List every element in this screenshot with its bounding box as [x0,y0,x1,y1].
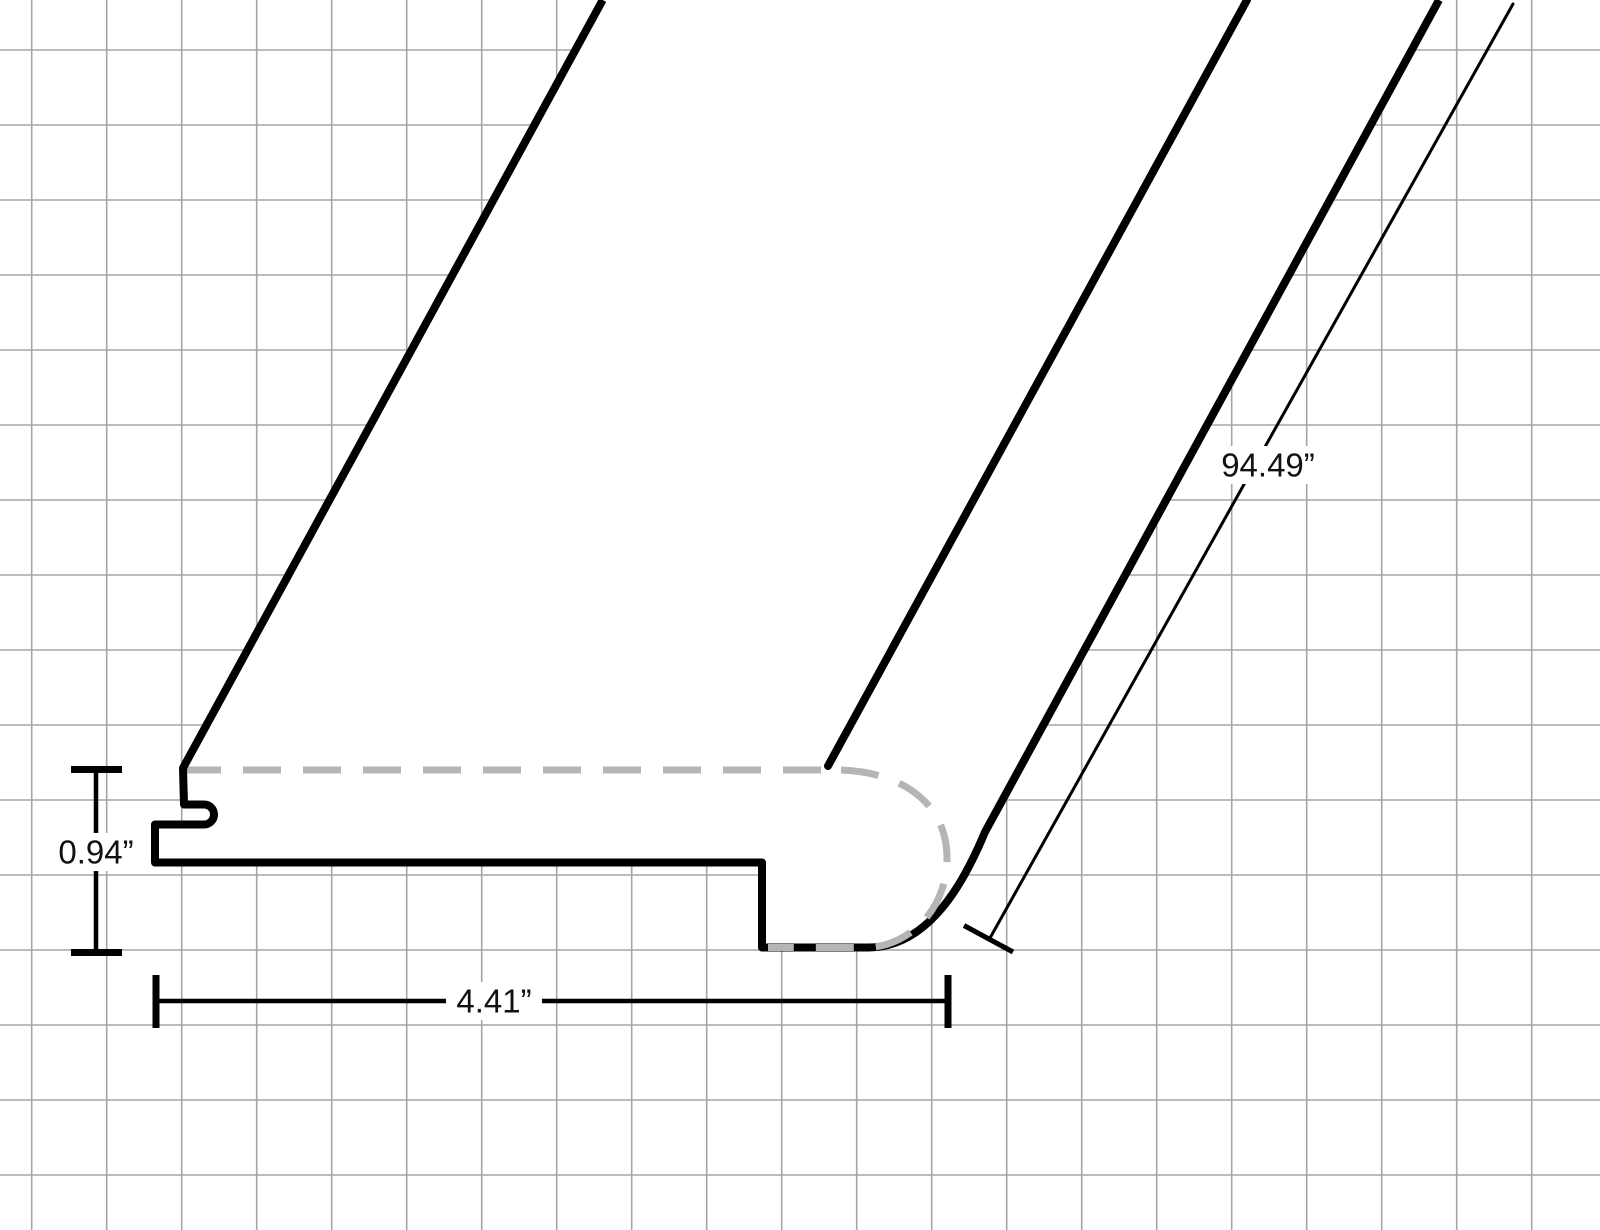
technical-profile-drawing: 0.94” 4.41” 94.49” [0,0,1600,1230]
thickness-label: 0.94” [58,834,133,871]
length-label: 94.49” [1221,447,1315,484]
drawing-canvas: 0.94” 4.41” 94.49” [0,0,1600,1230]
width-label: 4.41” [456,983,531,1020]
